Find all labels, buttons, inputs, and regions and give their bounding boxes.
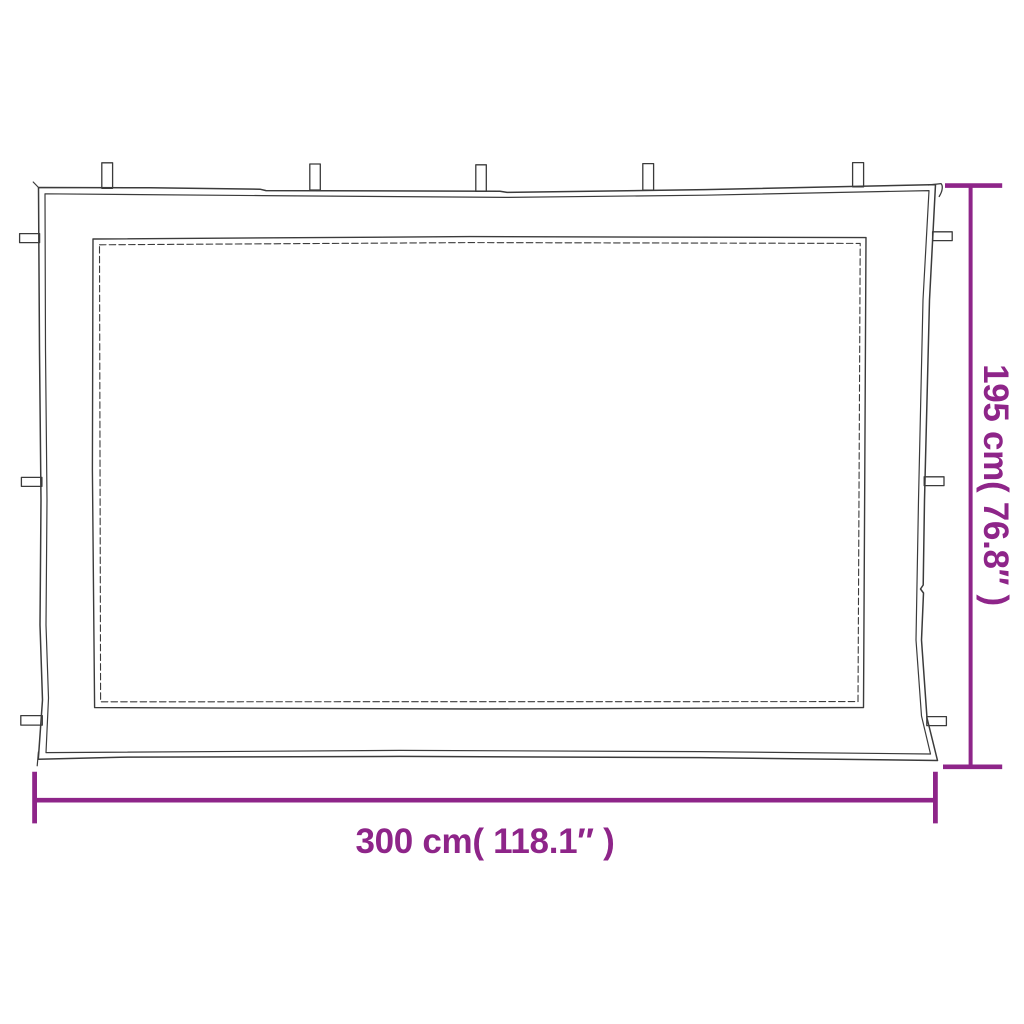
corner-overshoot-bottom-left xyxy=(37,752,38,766)
dimension-lines-group xyxy=(35,186,1003,824)
top-tab-3 xyxy=(476,165,487,192)
top-tab-5 xyxy=(853,163,864,187)
left-tab-1 xyxy=(20,234,40,243)
window-outline xyxy=(92,237,866,709)
sidewall-line-art xyxy=(0,0,1024,1024)
right-tab-3 xyxy=(927,717,947,726)
panel-outline-group xyxy=(20,163,953,766)
top-tab-1 xyxy=(102,163,113,189)
right-tab-2 xyxy=(924,477,944,486)
panel-inner-line xyxy=(45,191,931,754)
corner-overshoot-top-left xyxy=(33,182,39,188)
window-stitch-line xyxy=(100,243,861,702)
width-dimension-label: 300 cm( 118.1″ ) xyxy=(34,822,936,862)
top-tab-4 xyxy=(643,164,654,191)
left-tab-2 xyxy=(21,477,42,486)
height-dimension-label: 195 cm( 76.8″ ) xyxy=(974,335,1016,635)
top-tab-2 xyxy=(310,164,321,190)
left-tab-3 xyxy=(21,716,43,726)
right-tab-1 xyxy=(933,232,953,241)
panel-outer-line xyxy=(38,185,937,761)
product-dimension-diagram: 300 cm( 118.1″ ) 195 cm( 76.8″ ) xyxy=(0,0,1024,1024)
